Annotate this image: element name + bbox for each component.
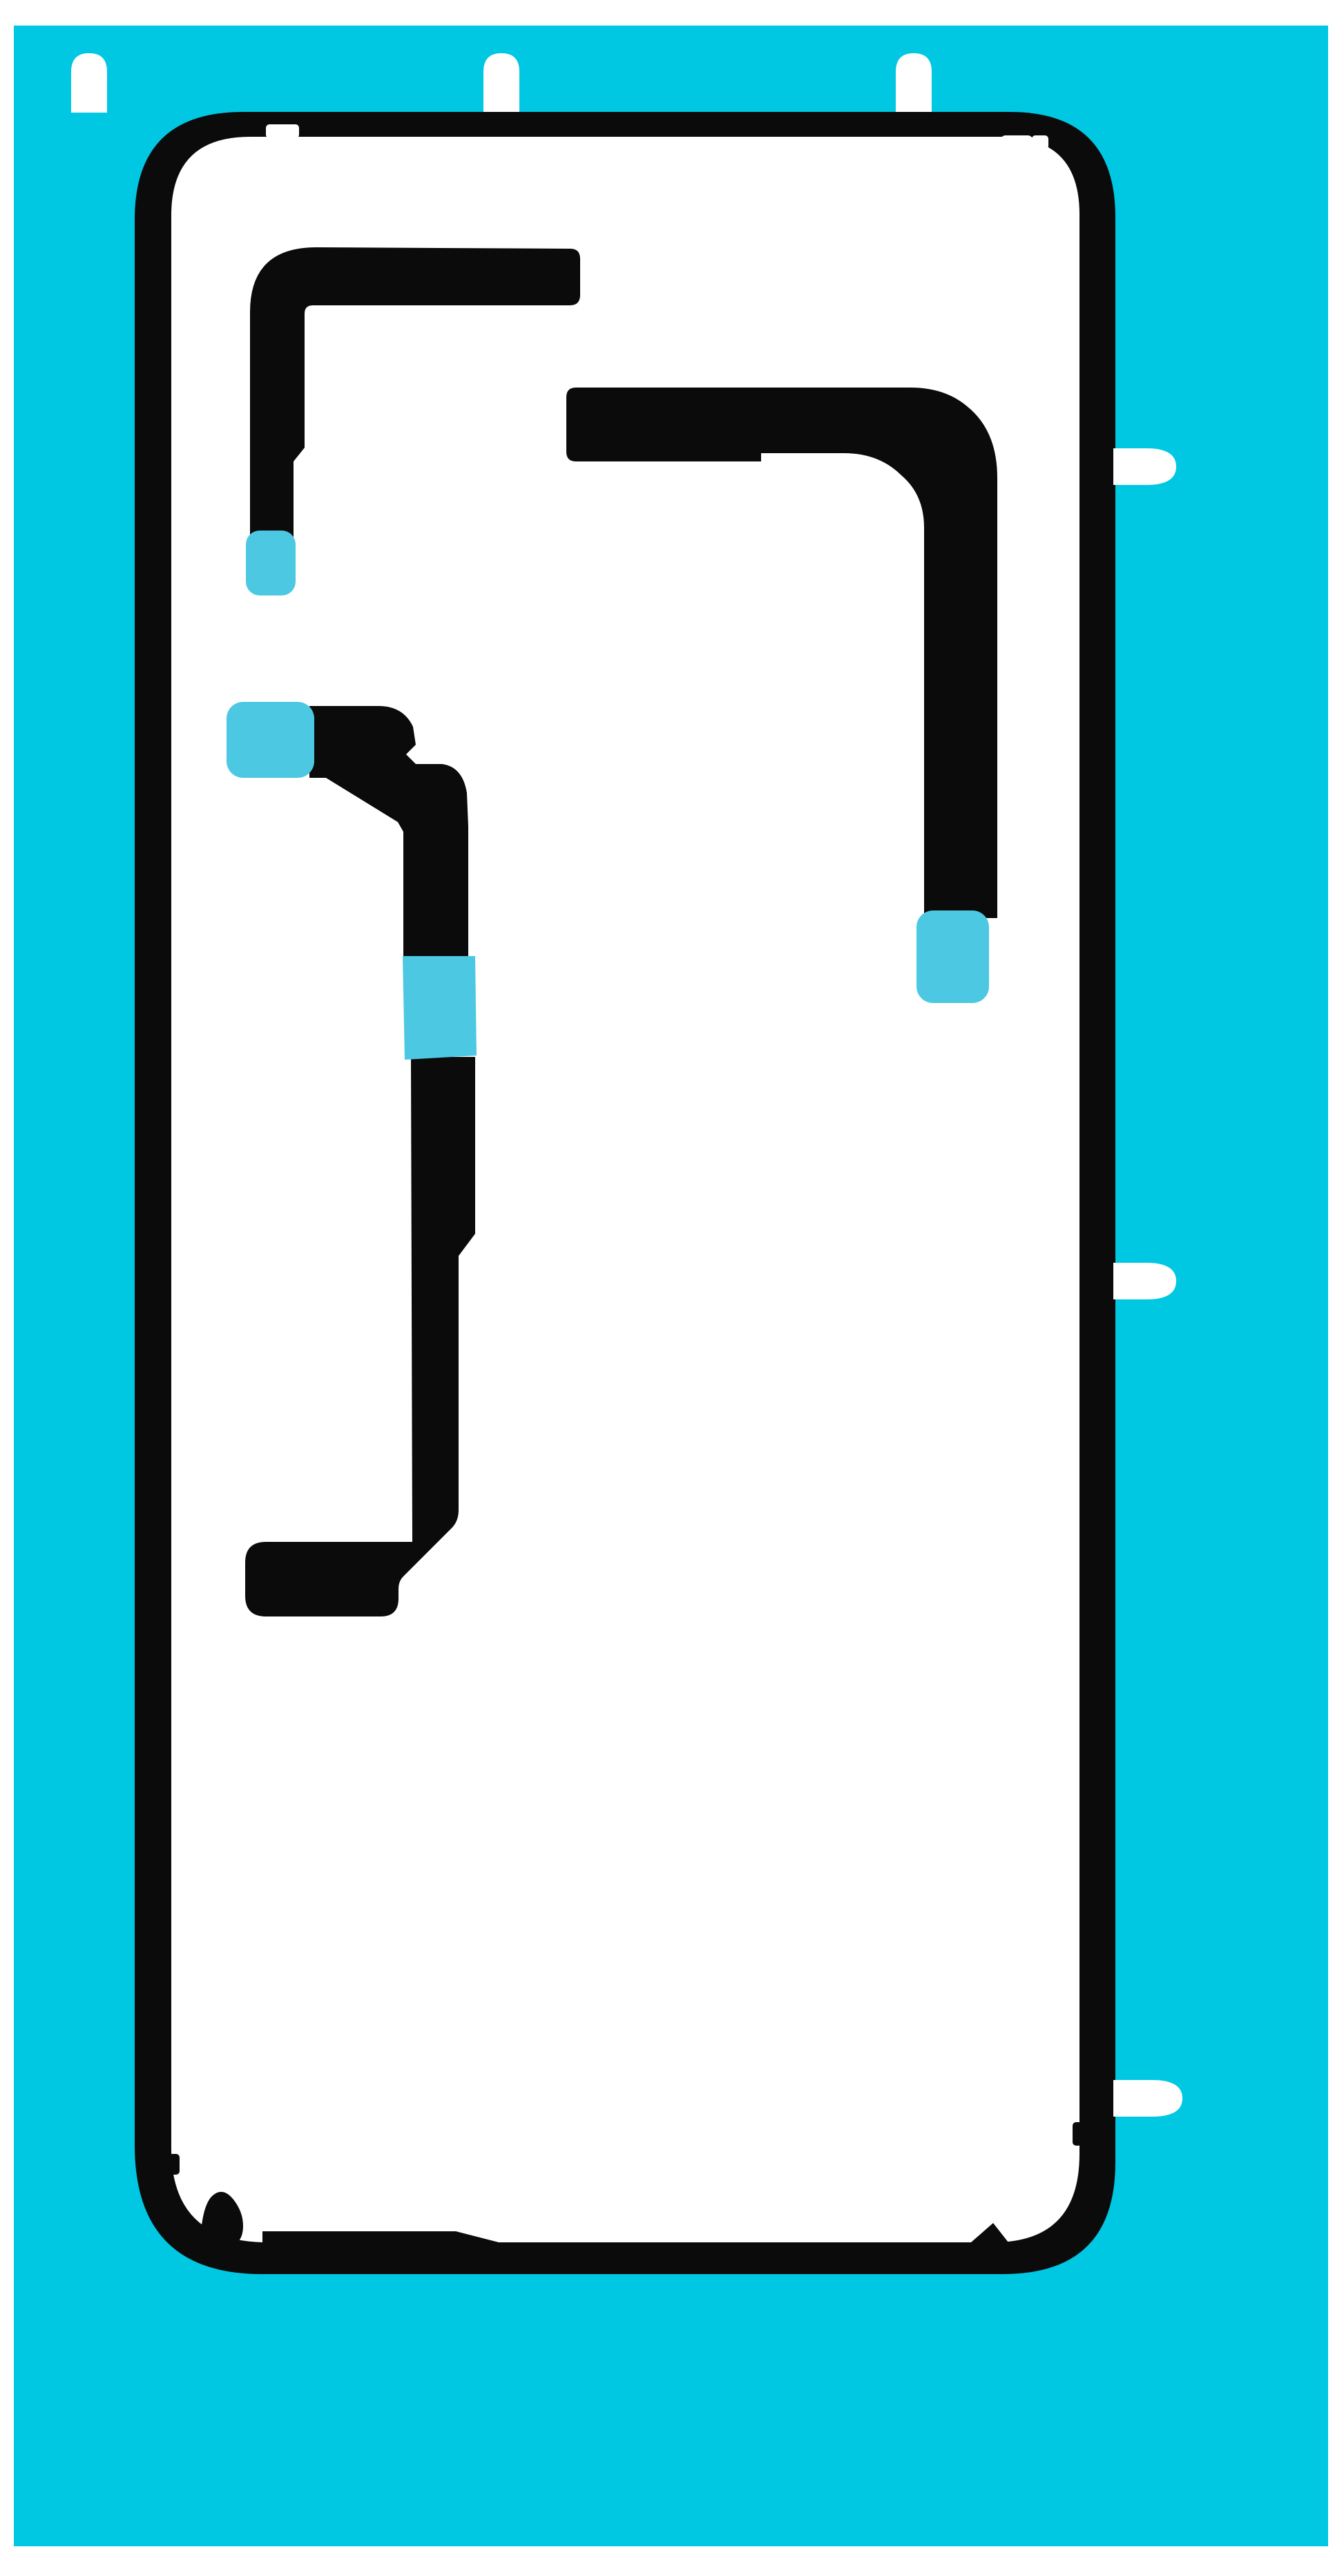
top-right-inner-step <box>1032 135 1048 149</box>
pull-tab-left-strip-segment <box>403 956 477 1060</box>
adhesive-sheet-illustration <box>0 0 1344 2576</box>
slot-top-right <box>896 53 932 113</box>
pull-tab-right-strip <box>916 910 989 1003</box>
tab-right-upper <box>1113 448 1176 485</box>
pull-tab-top-left-strip <box>246 531 296 595</box>
adhesive-sheet-photo <box>0 0 1344 2576</box>
slot-top-left <box>71 53 107 113</box>
top-right-inner-notch <box>1000 135 1033 162</box>
slot-top-center <box>483 53 519 113</box>
top-border-notch <box>266 124 299 138</box>
right-inner-nub <box>1073 2122 1082 2146</box>
tab-right-middle <box>1113 1263 1176 1299</box>
bottom-inner-ledge <box>262 2231 456 2244</box>
tab-right-lower <box>1113 2080 1182 2117</box>
pull-tab-left-strip-start <box>227 702 314 778</box>
left-inner-nub <box>169 2154 180 2175</box>
